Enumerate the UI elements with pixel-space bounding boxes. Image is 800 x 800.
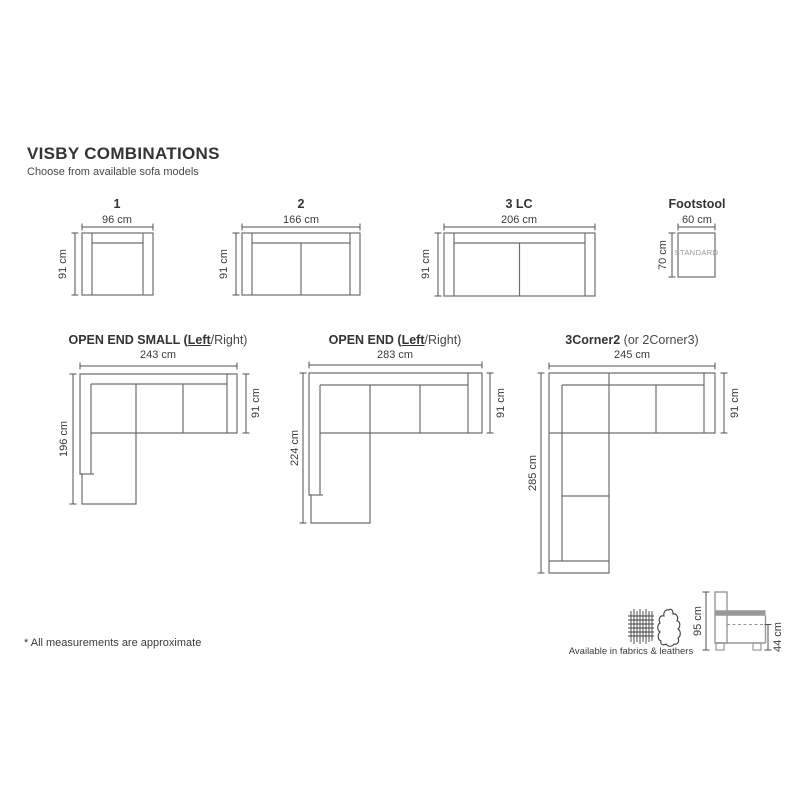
footstool-title: Footstool (662, 197, 732, 211)
model-2-title: 2 (271, 197, 331, 211)
model-1-title: 1 (87, 197, 147, 211)
side-view-height-label: 95 cm (692, 586, 704, 656)
leather-icon (658, 609, 681, 646)
open-end-small-depth-label: 91 cm (250, 368, 262, 438)
open-end-title-left: Left (402, 333, 425, 347)
open-end-small-title-bold: OPEN END SMALL ( (69, 333, 188, 347)
open-end-small-title-rest: /Right) (211, 333, 248, 347)
model-3lc-plan (444, 233, 595, 296)
open-end-small-width-label: 243 cm (123, 349, 193, 361)
open-end-title-rest: /Right) (425, 333, 462, 347)
open-end-small-title: OPEN END SMALL (Left/Right) (48, 333, 268, 347)
open-end-small-title-left: Left (188, 333, 211, 347)
sofa-side-view (715, 592, 766, 650)
corner-plan (549, 373, 715, 573)
open-end-title: OPEN END (Left/Right) (295, 333, 495, 347)
model-3lc-title: 3 LC (489, 197, 549, 211)
model-1-dimension-lines (72, 224, 154, 296)
corner-title-bold: 3Corner2 (565, 333, 620, 347)
corner-height-label: 285 cm (527, 438, 539, 508)
open-end-small-height-label: 196 cm (58, 404, 70, 474)
model-1-depth-label: 91 cm (57, 229, 69, 299)
model-3lc-dimension-lines (435, 224, 596, 297)
open-end-small-plan (80, 374, 237, 504)
corner-width-label: 245 cm (597, 349, 667, 361)
open-end-width-label: 283 cm (360, 349, 430, 361)
open-end-title-bold: OPEN END ( (329, 333, 402, 347)
page-subtitle: Choose from available sofa models (27, 166, 199, 178)
footnote: * All measurements are approximate (24, 637, 201, 649)
side-view-dimension-lines (703, 592, 772, 650)
open-end-height-label: 224 cm (289, 413, 301, 483)
availability-label: Available in fabrics & leathers (561, 646, 701, 657)
corner-dimension-lines (538, 363, 728, 574)
footstool-badge: STANDARD (666, 248, 727, 257)
model-2-width-label: 166 cm (266, 214, 336, 226)
corner-depth-label: 91 cm (729, 368, 741, 438)
model-1-plan (82, 233, 153, 295)
fabric-icon (628, 609, 654, 644)
open-end-plan (309, 373, 482, 523)
corner-title-rest: (or 2Corner3) (620, 333, 699, 347)
open-end-depth-label: 91 cm (495, 368, 507, 438)
model-3lc-depth-label: 91 cm (420, 229, 432, 299)
model-3lc-width-label: 206 cm (484, 214, 554, 226)
open-end-dimension-lines (300, 362, 494, 524)
model-2-depth-label: 91 cm (218, 229, 230, 299)
diagrams-svg (0, 0, 800, 800)
spec-sheet: VISBY COMBINATIONS Choose from available… (0, 0, 800, 800)
footstool-width-label: 60 cm (662, 214, 732, 226)
page-title: VISBY COMBINATIONS (27, 144, 220, 164)
model-2-plan (242, 233, 360, 295)
model-1-width-label: 96 cm (82, 214, 152, 226)
side-view-seat-height-label: 44 cm (772, 602, 784, 672)
corner-title: 3Corner2 (or 2Corner3) (522, 333, 742, 347)
